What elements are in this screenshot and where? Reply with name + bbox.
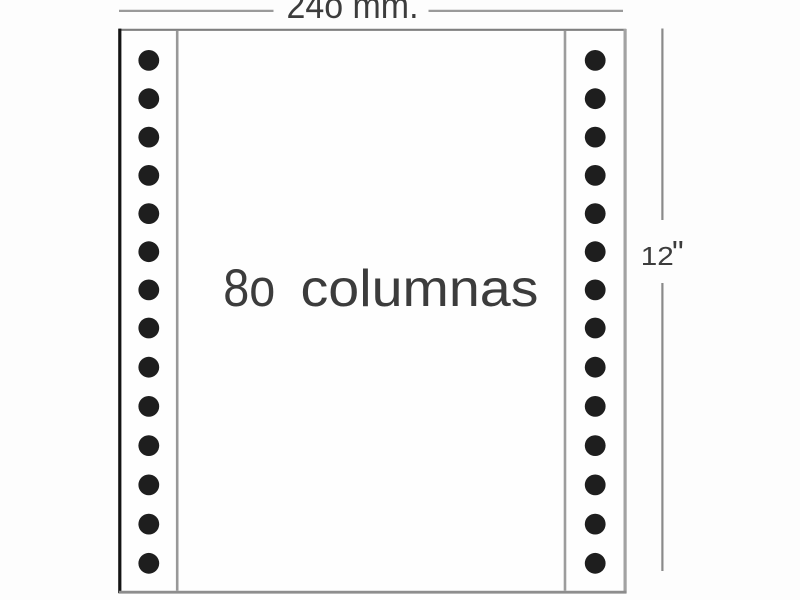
svg-text:8o: 8o	[223, 259, 275, 318]
svg-text:24o mm.: 24o mm.	[287, 0, 419, 26]
svg-text:columnas: columnas	[301, 260, 539, 318]
svg-text:": "	[672, 234, 684, 271]
svg-text:12: 12	[641, 241, 674, 271]
